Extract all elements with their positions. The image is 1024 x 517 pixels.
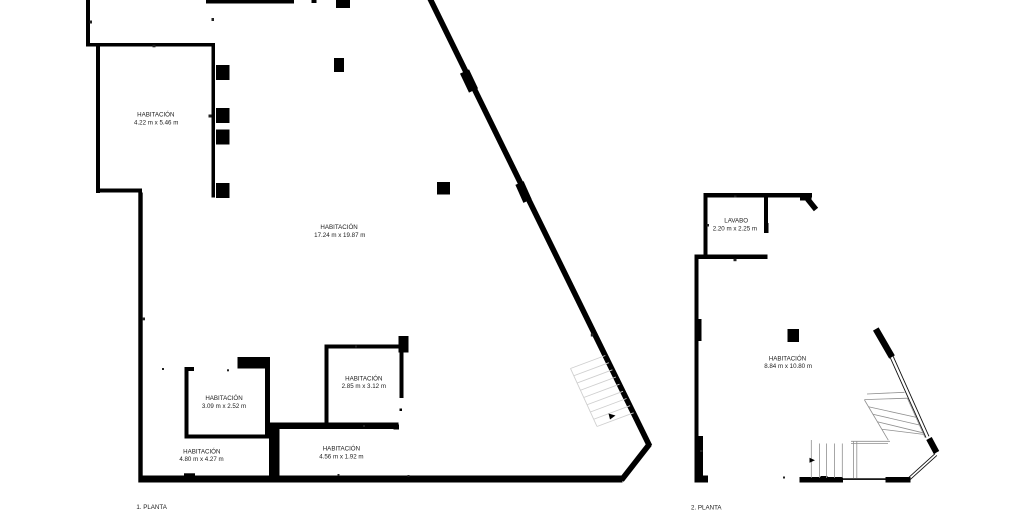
svg-text:2.85 m x 3.12 m: 2.85 m x 3.12 m [342, 383, 386, 390]
svg-text:HABITACIÓN: HABITACIÓN [769, 355, 806, 362]
svg-text:8.84 m x 10.80 m: 8.84 m x 10.80 m [764, 363, 812, 370]
svg-text:3.09 m x 2.52 m: 3.09 m x 2.52 m [202, 403, 246, 410]
svg-text:HABITACIÓN: HABITACIÓN [137, 111, 174, 118]
svg-text:HABITACIÓN: HABITACIÓN [205, 395, 242, 402]
svg-text:17.24 m x 19.87 m: 17.24 m x 19.87 m [314, 232, 365, 239]
svg-text:2.20 m x 2.25 m: 2.20 m x 2.25 m [713, 226, 757, 233]
svg-text:HABITACIÓN: HABITACIÓN [345, 375, 382, 382]
svg-text:LAVABO: LAVABO [724, 217, 748, 224]
svg-text:4.80 m x 4.27 m: 4.80 m x 4.27 m [179, 456, 223, 463]
svg-text:1. PLANTA: 1. PLANTA [136, 504, 167, 511]
svg-text:2. PLANTA: 2. PLANTA [691, 504, 722, 511]
svg-text:4.56 m x 1.92 m: 4.56 m x 1.92 m [319, 454, 363, 461]
svg-text:HABITACIÓN: HABITACIÓN [323, 445, 360, 452]
svg-text:HABITACIÓN: HABITACIÓN [320, 224, 357, 231]
svg-text:HABITACIÓN: HABITACIÓN [183, 448, 220, 455]
svg-text:4.22 m x 5.46 m: 4.22 m x 5.46 m [134, 120, 178, 127]
